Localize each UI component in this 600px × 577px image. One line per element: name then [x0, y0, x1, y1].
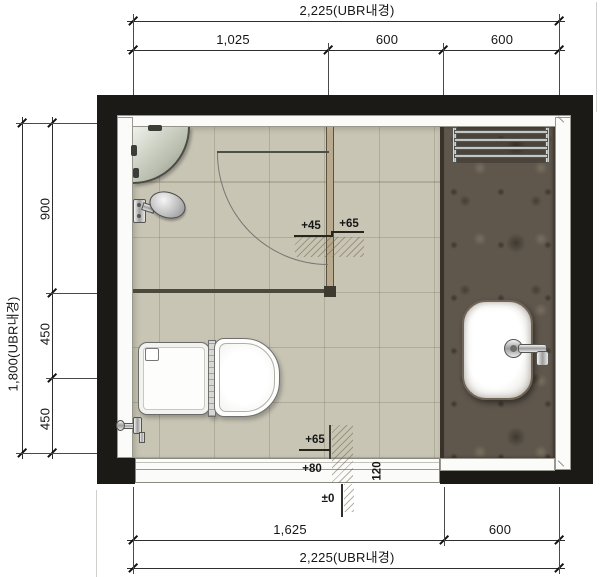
level-shower-step: +45 [301, 220, 321, 233]
extension-line [16, 453, 99, 454]
dim-top-seg3: 600 [491, 32, 513, 47]
extension-line [443, 43, 444, 95]
dim-left-overall: 1,800(UBR내경) [6, 297, 21, 392]
liner-under-counter [440, 458, 555, 471]
dim-line [127, 540, 565, 541]
dim-top-overall: 2,225(UBR내경) [300, 3, 395, 18]
dim-left-seg3: 450 [38, 408, 53, 430]
dim-bottom-overall: 2,225(UBR내경) [300, 550, 395, 565]
dim-bottom-seg1: 1,625 [273, 522, 307, 537]
wall-right [571, 95, 593, 484]
toilet-flush-button [145, 348, 159, 361]
threshold-joint-line [136, 462, 439, 463]
marble-counter [440, 127, 555, 458]
wall-bottom-left-pier [97, 458, 135, 484]
level-entry-floor: +65 [305, 434, 325, 447]
towel-rack-bar [454, 146, 548, 150]
towel-rack [452, 127, 550, 163]
toilet-seat [219, 343, 275, 412]
extension-line [444, 487, 445, 546]
step-line [332, 231, 364, 233]
shelf-clip [131, 145, 137, 156]
towel-rack-bar [454, 138, 548, 142]
step-hatch [295, 237, 364, 257]
extension-line [133, 14, 134, 95]
toilet [138, 338, 280, 418]
towel-rack-bar [454, 130, 548, 134]
dim-line [127, 50, 565, 51]
datum-hatch [344, 484, 354, 512]
extension-line [133, 487, 134, 574]
wall-top [97, 95, 593, 117]
shelf-clip [133, 168, 139, 178]
ghost-line [596, 2, 597, 112]
extension-line [559, 487, 560, 574]
wall-left [97, 95, 117, 484]
dim-left-seg2: 450 [38, 323, 53, 345]
dim-left-seg1: 900 [38, 198, 53, 220]
dim-line [127, 21, 565, 22]
faucet-dot [510, 345, 517, 352]
datum-line [341, 484, 343, 517]
toilet-valve-handle [116, 420, 125, 431]
shelf-clip [148, 125, 162, 131]
shower-curb [133, 289, 336, 293]
level-threshold-depth: 120 [372, 461, 385, 480]
liner-top [117, 115, 571, 127]
dim-top-seg1: 1,025 [216, 32, 250, 47]
threshold-joint-line [136, 469, 439, 470]
liner-left [117, 117, 133, 458]
dim-line [127, 568, 565, 569]
bathroom-floor-plan: 2,225(UBR내경) 1,025 600 600 1,800(UBR내경) … [0, 0, 600, 577]
dim-line [22, 117, 23, 459]
dim-top-seg2: 600 [376, 32, 398, 47]
level-door-floor: +65 [339, 218, 359, 231]
towel-rack-bar [454, 154, 548, 158]
level-outside-datum: ±0 [322, 493, 335, 506]
extension-line [559, 14, 560, 95]
step-line [299, 449, 330, 451]
entry-hatch [332, 425, 353, 483]
extension-line [328, 43, 329, 95]
wall-bottom-right [440, 470, 571, 484]
step-line [329, 425, 331, 459]
extension-line [46, 378, 99, 379]
level-threshold: +80 [302, 463, 322, 476]
shower-screw [137, 203, 141, 207]
ghost-line [96, 490, 97, 577]
liner-right [555, 117, 571, 470]
faucet-elbow [536, 351, 549, 366]
toilet-valve-drop [139, 432, 145, 443]
extension-line [16, 123, 99, 124]
extension-line [46, 293, 99, 294]
dim-bottom-seg2: 600 [489, 522, 511, 537]
shower-screw [137, 214, 141, 218]
door-frame-foot [324, 286, 336, 297]
